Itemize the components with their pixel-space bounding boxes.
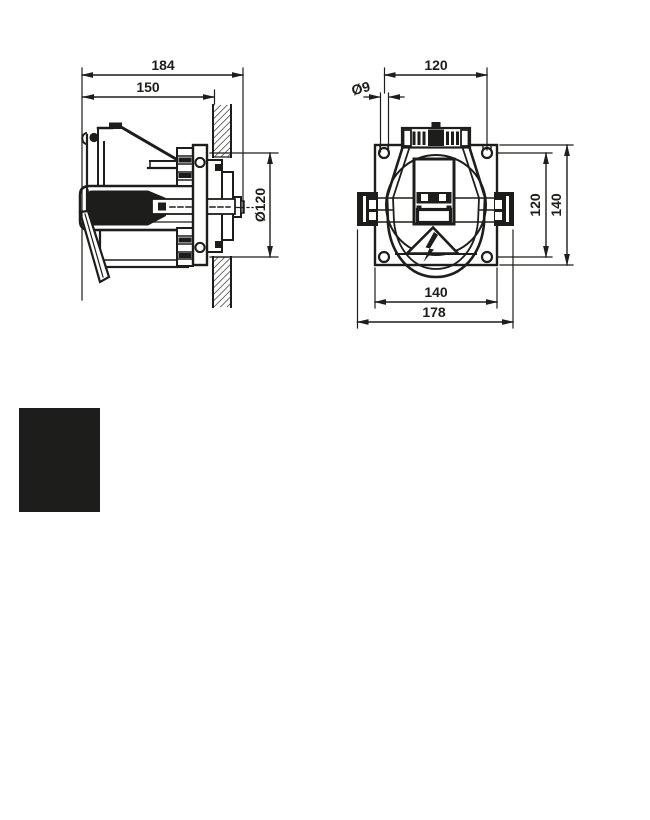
side-view-drawing: 184 150 Ø120 <box>80 57 278 307</box>
redaction-block <box>19 408 100 512</box>
dim-label-184: 184 <box>151 57 175 73</box>
mounting-hole <box>379 252 389 262</box>
flange-screw <box>195 158 204 167</box>
hinge-top-tab <box>432 122 441 129</box>
technical-drawing-page: 184 150 Ø120 <box>0 0 650 820</box>
dim-label-140-right: 140 <box>548 193 564 217</box>
dim-label-120-right: 120 <box>527 193 543 217</box>
cable-gland-left <box>357 192 378 226</box>
flange-screw <box>195 243 204 252</box>
dim-label-178-bottom: 178 <box>422 304 446 320</box>
dim-150: 150 <box>83 79 215 104</box>
hinge-pivot <box>89 133 98 142</box>
dim-label-150: 150 <box>136 79 160 95</box>
lower-body <box>100 230 188 267</box>
dim-label-diameter-120: Ø120 <box>252 188 268 222</box>
dim-label-diameter-9: Ø9 <box>350 78 372 98</box>
mounting-hole <box>482 252 492 262</box>
dim-140-bottom: 140 <box>375 268 497 308</box>
cable-gland-right <box>494 192 514 226</box>
dim-label-120-top: 120 <box>424 57 448 73</box>
dim-9-hole: Ø9 <box>350 78 404 152</box>
dim-label-140-bottom: 140 <box>424 284 448 300</box>
lid-hinge-ribs <box>402 122 470 148</box>
technical-drawing-canvas: 184 150 Ø120 <box>0 0 650 820</box>
front-view-drawing: 120 Ø9 120 140 140 <box>350 57 573 328</box>
label-window <box>414 159 454 224</box>
mounting-flange <box>193 145 207 265</box>
spring-clip <box>82 133 86 144</box>
